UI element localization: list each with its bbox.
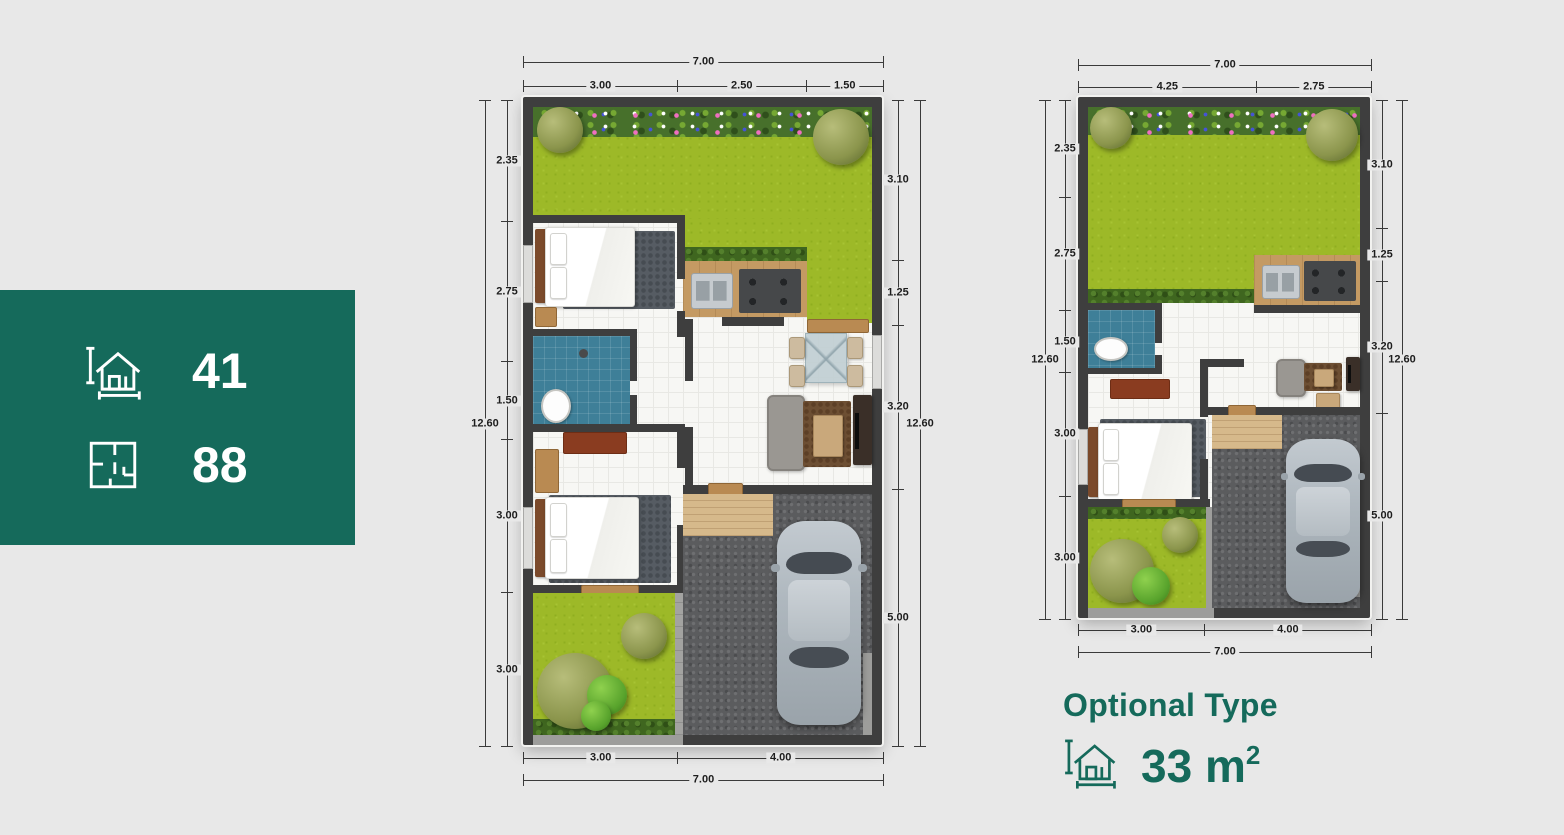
tv-screen (855, 413, 859, 449)
sofa (1276, 359, 1306, 397)
living-partition-wall (1200, 359, 1244, 367)
car-mirror (858, 564, 866, 572)
dim-small-bottom-segments: 3.004.00 (1078, 624, 1372, 636)
dimension-segment: 5.00 (892, 489, 904, 746)
dining-chair (789, 337, 805, 359)
dimension-label: 5.00 (1367, 511, 1396, 522)
dimension-label: 3.10 (1367, 159, 1396, 170)
dimension-segment: 3.10 (1376, 101, 1388, 228)
garden-grass-far-right (807, 219, 872, 323)
dimension-segment: 2.75 (1059, 197, 1071, 310)
dimension-label: 3.10 (883, 175, 912, 186)
shower-drain (579, 349, 588, 358)
dimension-label: 3.00 (1050, 552, 1079, 563)
bathroom-right-wall (630, 329, 637, 381)
dimension-label: 7.00 (1210, 60, 1239, 71)
dimension-label: 3.20 (883, 402, 912, 413)
toilet (541, 389, 571, 423)
dim-large-top-total: 7.00 (523, 56, 884, 68)
kitchen-wall (722, 317, 784, 326)
page-canvas: 41 88 7.00 3.002.501.50 3.004.00 7.00 12… (0, 0, 1564, 835)
dresser (563, 432, 627, 454)
garden-fence (533, 735, 683, 745)
dining-chair (847, 337, 863, 359)
dimension-segment: 1.25 (1376, 228, 1388, 280)
garden-shrub (813, 109, 869, 165)
garden-shrub (1306, 109, 1358, 161)
dimension-segment: 4.00 (677, 752, 883, 764)
bedroom-right-wall (1200, 359, 1208, 417)
toilet (1094, 337, 1128, 361)
dimension-segment: 12.60 (1396, 101, 1408, 619)
dimension-segment: 3.00 (1059, 496, 1071, 619)
bathroom-right-wall (1155, 303, 1162, 343)
dim-small-right-total: 12.60 (1396, 100, 1408, 620)
pillow (550, 539, 567, 573)
dimension-segment: 7.00 (524, 56, 883, 68)
pillow (550, 267, 567, 299)
car-mirror (771, 564, 779, 572)
dimension-segment: 1.25 (892, 260, 904, 325)
garden-hedge (1088, 289, 1254, 303)
dimension-segment: 4.25 (1079, 81, 1256, 93)
car-windshield (1294, 464, 1352, 482)
dimension-segment: 3.10 (892, 101, 904, 260)
tv-screen (1348, 365, 1351, 383)
dimension-label: 2.50 (727, 81, 756, 92)
dimension-label: 3.00 (1050, 429, 1079, 440)
window (523, 245, 533, 303)
badge-value-land: 88 (192, 440, 248, 490)
dim-small-left-total: 12.60 (1039, 100, 1051, 620)
dimension-label: 7.00 (689, 775, 718, 786)
car-rear-window (789, 647, 850, 667)
house-measure-icon (1063, 735, 1117, 789)
kitchen-stove (1304, 261, 1356, 301)
dimension-label: 2.75 (1299, 82, 1328, 93)
dimension-segment: 2.75 (1256, 81, 1371, 93)
dim-large-top-segments: 3.002.501.50 (523, 80, 884, 92)
dim-small-bottom-total: 7.00 (1078, 646, 1372, 658)
dimension-label: 12.60 (1027, 355, 1063, 366)
dimension-label: 3.20 (1367, 342, 1396, 353)
bedroom1-right-wall (677, 215, 685, 279)
dimension-label: 12.60 (902, 418, 938, 429)
optional-area-row: 33 m2 (1063, 735, 1278, 789)
dimension-segment: 7.00 (1079, 59, 1371, 71)
dimension-label: 5.00 (883, 613, 912, 624)
dimension-segment: 1.50 (806, 80, 884, 92)
window (872, 335, 882, 389)
window (523, 507, 533, 569)
dimension-segment: 3.00 (1079, 624, 1204, 636)
dimension-segment: 2.35 (501, 101, 513, 221)
bedroom1-right-wall (677, 311, 685, 337)
dimension-label: 2.75 (492, 286, 521, 297)
desk (535, 449, 559, 493)
front-garden-hedge (1088, 507, 1208, 519)
front-garden-bush (1132, 567, 1170, 605)
dimension-label: 4.25 (1153, 82, 1182, 93)
car-windshield (786, 552, 852, 574)
dimension-segment: 2.35 (1059, 101, 1071, 197)
dim-small-top-segments: 4.252.75 (1078, 81, 1372, 93)
house-measure-icon (84, 342, 142, 400)
car-mirror (1281, 473, 1288, 480)
dimension-segment: 3.00 (524, 80, 677, 92)
dimension-label: 3.00 (1127, 625, 1156, 636)
coffee-table (1314, 369, 1334, 387)
garden-fence (1088, 608, 1214, 618)
front-garden-fern (621, 613, 667, 659)
dimension-segment: 7.00 (1079, 646, 1371, 658)
optional-area-sup: 2 (1246, 740, 1260, 770)
dim-large-left-total: 12.60 (479, 100, 491, 747)
optional-area-text: 33 m (1141, 740, 1246, 792)
dining-table (805, 333, 847, 383)
bedroom1-top-wall (533, 215, 685, 223)
spec-badge: 41 88 (0, 290, 355, 545)
optional-type-block: Optional Type 33 m2 (1063, 688, 1278, 789)
dimension-label: 1.50 (492, 395, 521, 406)
dimension-label: 7.00 (1210, 647, 1239, 658)
car-mirror (1358, 473, 1365, 480)
dimension-label: 2.35 (1050, 143, 1079, 154)
pillow (1103, 429, 1119, 461)
badge-row-building-size: 41 (84, 342, 355, 400)
bathroom-top-wall (1088, 303, 1162, 310)
car-roof (788, 580, 850, 641)
car-rear-window (1296, 541, 1349, 557)
dim-large-left-segments: 2.352.751.503.003.00 (501, 100, 513, 747)
dimension-segment: 12.60 (479, 101, 491, 746)
driveway-curb (863, 653, 872, 735)
dimension-label: 4.00 (766, 753, 795, 764)
dimension-segment: 3.00 (1059, 372, 1071, 495)
bathroom-bottom-wall (1088, 368, 1162, 374)
entry-deck (1212, 415, 1282, 449)
optional-type-title: Optional Type (1063, 688, 1278, 723)
bedroom2-right-wall (677, 424, 685, 468)
entry-deck (683, 494, 773, 536)
hallway-wall (685, 319, 693, 381)
optional-area-value: 33 m2 (1141, 742, 1260, 789)
dimension-label: 1.50 (1050, 336, 1079, 347)
dimension-label: 7.00 (689, 57, 718, 68)
dimension-label: 12.60 (467, 418, 503, 429)
front-garden-fern (1162, 517, 1198, 553)
garden-bush (1090, 107, 1132, 149)
dining-chair (847, 365, 863, 387)
dim-large-bottom-total: 7.00 (523, 774, 884, 786)
bedroom-right-wall (1200, 459, 1208, 507)
nightstand (535, 307, 557, 327)
dimension-label: 1.25 (883, 287, 912, 298)
dimension-label: 4.00 (1273, 625, 1302, 636)
dimension-segment: 3.20 (1376, 281, 1388, 413)
dimension-segment: 4.00 (1204, 624, 1371, 636)
car (1286, 439, 1360, 603)
car-roof (1296, 487, 1351, 536)
dimension-label: 2.75 (1050, 248, 1079, 259)
garden-grass-left (1088, 257, 1254, 289)
dimension-segment: 2.50 (677, 80, 806, 92)
kitchen-wall (1254, 305, 1360, 313)
dimension-label: 3.00 (586, 753, 615, 764)
pillow (550, 233, 567, 265)
garden-bush (537, 107, 583, 153)
dimension-label: 3.00 (586, 81, 615, 92)
front-garden-bush (581, 701, 611, 731)
dimension-segment: 3.20 (892, 325, 904, 490)
badge-value-building: 41 (192, 346, 248, 396)
dimension-segment: 3.00 (501, 592, 513, 746)
badge-row-land-size: 88 (84, 436, 355, 494)
dimension-segment: 3.00 (501, 439, 513, 593)
dimension-segment: 5.00 (1376, 413, 1388, 619)
car (777, 521, 861, 725)
dimension-label: 1.25 (1367, 249, 1396, 260)
floor-plan-icon (84, 436, 142, 494)
pillow (1103, 463, 1119, 495)
dimension-segment: 2.75 (501, 221, 513, 362)
dimension-label: 3.00 (492, 664, 521, 675)
dim-small-top-total: 7.00 (1078, 59, 1372, 71)
window-sill (807, 319, 869, 333)
sofa (767, 395, 805, 471)
bathroom-right-wall (630, 395, 637, 424)
kitchen-stove (739, 269, 801, 313)
dimension-segment: 12.60 (1039, 101, 1051, 619)
kitchen-sink (1262, 265, 1300, 299)
dimension-label: 2.35 (492, 155, 521, 166)
dimension-segment: 12.60 (914, 101, 926, 746)
pillow (550, 503, 567, 537)
bathroom-top-wall (533, 329, 637, 336)
dresser (1110, 379, 1170, 399)
bedroom2-top-wall (533, 424, 685, 432)
dimension-label: 1.50 (830, 81, 859, 92)
dim-large-right-total: 12.60 (914, 100, 926, 747)
kitchen-sink (691, 273, 733, 309)
hallway-wall (685, 427, 693, 485)
dimension-label: 12.60 (1384, 355, 1420, 366)
dining-chair (789, 365, 805, 387)
dimension-segment: 1.50 (501, 361, 513, 438)
dimension-segment: 7.00 (524, 774, 883, 786)
coffee-table (813, 415, 843, 457)
floor-plan-small (1078, 97, 1370, 618)
dimension-label: 3.00 (492, 511, 521, 522)
floor-plan-large (523, 97, 882, 745)
dimension-segment: 3.00 (524, 752, 677, 764)
dim-large-bottom-segments: 3.004.00 (523, 752, 884, 764)
